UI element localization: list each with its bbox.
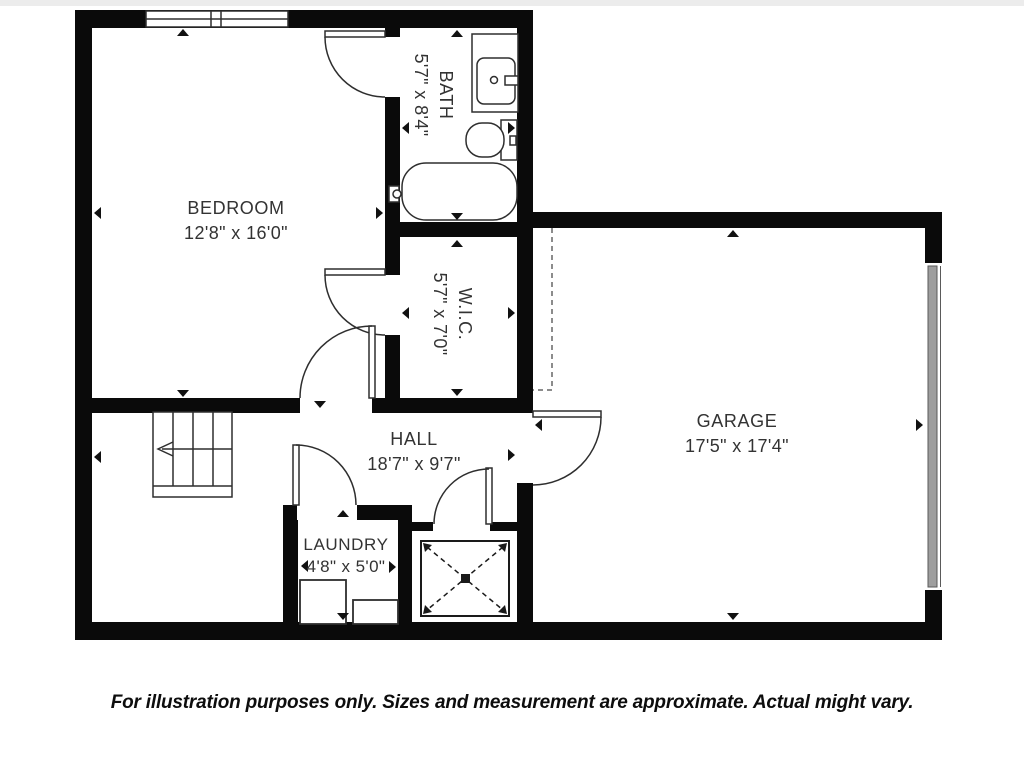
dimension-marker xyxy=(389,561,396,573)
dimension-marker xyxy=(451,30,463,37)
sink-faucet xyxy=(505,76,518,85)
laundry-appliances xyxy=(300,580,398,624)
vanity-sink xyxy=(472,34,518,112)
wall-shaft-left xyxy=(398,505,412,622)
garage-dims: 17'5" x 17'4" xyxy=(685,434,789,459)
disclaimer-text: For illustration purposes only. Sizes an… xyxy=(111,692,914,714)
laundry-name: LAUNDRY xyxy=(303,534,388,556)
door-arc xyxy=(300,326,372,398)
mechanical-shaft xyxy=(412,531,517,622)
bedroom-door xyxy=(300,326,375,398)
dryer xyxy=(353,600,398,624)
wall-block-right xyxy=(517,10,533,640)
dimension-marker xyxy=(177,29,189,36)
dimension-marker xyxy=(451,389,463,396)
door-leaf xyxy=(533,411,601,417)
dimension-marker xyxy=(727,613,739,620)
bath-name: BATH xyxy=(433,53,458,136)
wic-name: W.I.C. xyxy=(452,272,477,355)
dimension-marker xyxy=(508,307,515,319)
bath-label: BATH 5'7" x 8'4" xyxy=(408,53,458,136)
wall-bath-wic xyxy=(398,222,517,237)
dimension-marker xyxy=(94,207,101,219)
sink-drain xyxy=(491,77,498,84)
washer xyxy=(300,580,346,624)
toilet-bowl xyxy=(466,123,504,157)
bedroom-name: BEDROOM xyxy=(184,196,288,221)
door-leaf xyxy=(325,269,385,275)
dimension-marker xyxy=(916,419,923,431)
door-arc xyxy=(296,445,356,505)
dimension-marker xyxy=(727,230,739,237)
staircase xyxy=(153,412,232,497)
dimension-marker xyxy=(451,240,463,247)
garage-name: GARAGE xyxy=(685,409,789,434)
tub-outline xyxy=(402,163,517,220)
wall-top xyxy=(75,10,533,28)
laundry-door xyxy=(293,445,356,505)
opening-garage-door-hall xyxy=(517,413,533,483)
dimension-marker xyxy=(402,307,409,319)
overhead-dashed-line xyxy=(533,228,552,390)
door-arc xyxy=(325,37,385,97)
bathtub xyxy=(389,163,517,220)
bath-dims: 5'7" x 8'4" xyxy=(408,53,433,136)
hall-garage-door xyxy=(533,411,601,485)
hall-dims: 18'7" x 9'7" xyxy=(367,452,461,477)
tub-faucet xyxy=(393,190,401,198)
floor-plan-page: BEDROOM 12'8" x 16'0" BATH 5'7" x 8'4" W… xyxy=(0,0,1024,768)
bath-door xyxy=(325,31,385,97)
wall-bottom xyxy=(75,622,942,640)
toilet-flush-button xyxy=(510,136,516,145)
garage-label: GARAGE 17'5" x 17'4" xyxy=(685,409,789,459)
wall-laundry-left xyxy=(283,505,298,622)
door-arc xyxy=(434,469,489,524)
door-leaf xyxy=(369,326,375,398)
opening-wic-door xyxy=(385,275,400,335)
double-window xyxy=(146,11,288,27)
door-arc xyxy=(325,275,385,335)
door-leaf xyxy=(293,445,299,505)
shaft-center-mark xyxy=(461,574,470,583)
door-arc xyxy=(533,417,601,485)
dimension-marker xyxy=(508,449,515,461)
dimension-marker xyxy=(535,419,542,431)
door-leaf xyxy=(486,468,492,524)
opening-bedroom-door xyxy=(300,398,372,413)
opening-laundry-door xyxy=(297,505,357,520)
bedroom-label: BEDROOM 12'8" x 16'0" xyxy=(184,196,288,246)
dimension-marker xyxy=(376,207,383,219)
wic-dims: 5'7" x 7'0" xyxy=(427,272,452,355)
wic-label: W.I.C. 5'7" x 7'0" xyxy=(427,272,477,355)
wall-left xyxy=(75,10,92,640)
wic-door xyxy=(325,269,385,335)
opening-bath-door xyxy=(385,37,400,97)
hall-name: HALL xyxy=(367,427,461,452)
door-leaf xyxy=(325,31,385,37)
dimension-marker xyxy=(94,451,101,463)
floor-plan-drawing xyxy=(0,0,1024,768)
laundry-label: LAUNDRY 4'8" x 5'0" xyxy=(303,534,388,578)
laundry-dims: 4'8" x 5'0" xyxy=(303,556,388,578)
dimension-marker xyxy=(177,390,189,397)
garage-door-panel xyxy=(928,266,937,587)
wall-garage-top xyxy=(517,212,942,228)
bedroom-dims: 12'8" x 16'0" xyxy=(184,221,288,246)
hall-label: HALL 18'7" x 9'7" xyxy=(367,427,461,477)
